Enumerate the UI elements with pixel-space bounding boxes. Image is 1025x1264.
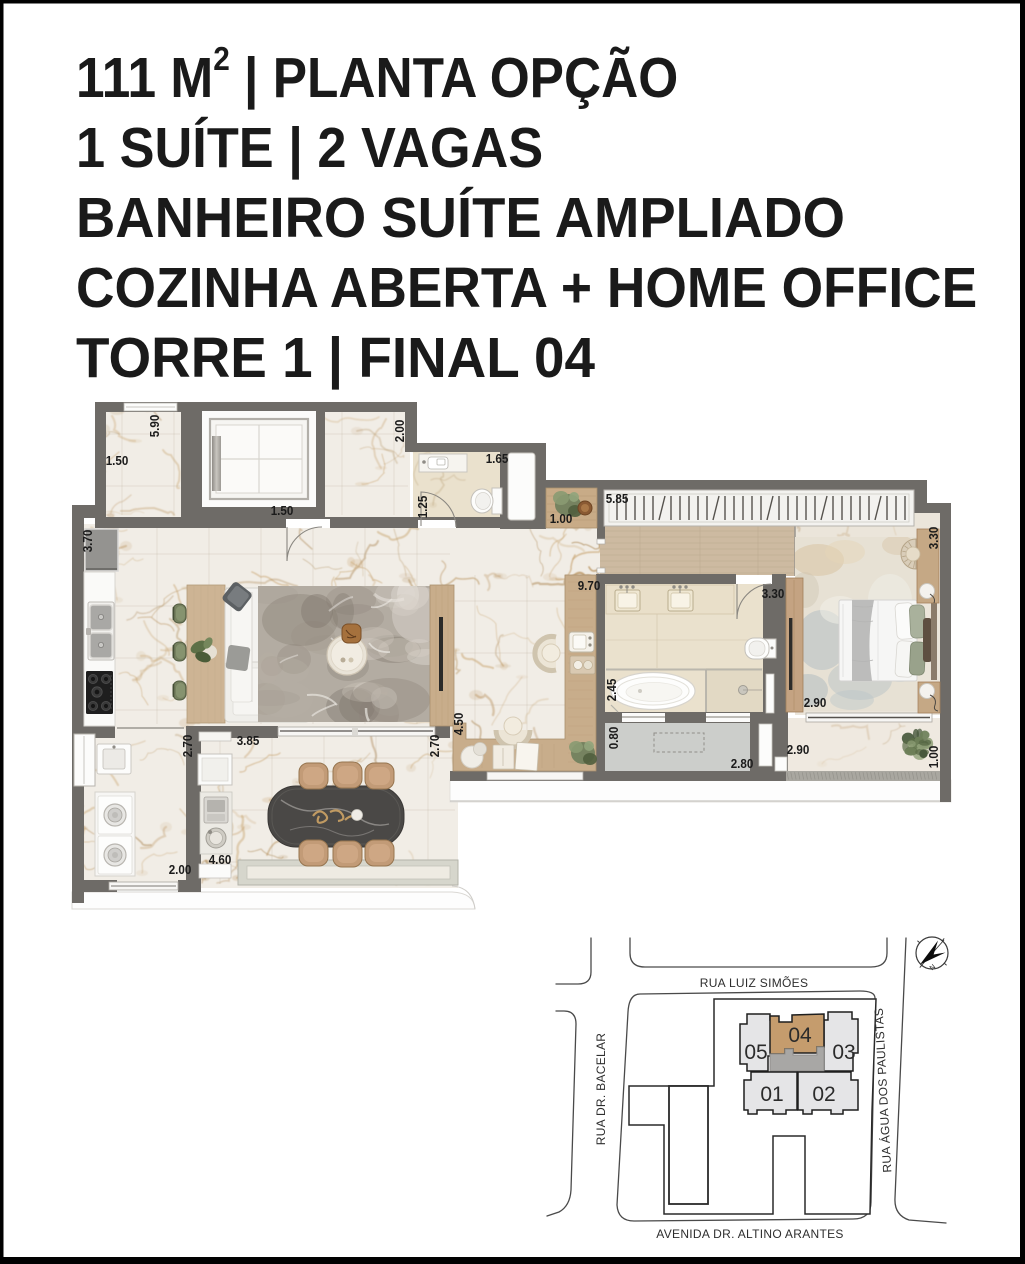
svg-text:5.90: 5.90 (147, 415, 162, 438)
svg-text:1.00: 1.00 (926, 746, 941, 769)
svg-text:1 SUÍTE | 2 VAGAS: 1 SUÍTE | 2 VAGAS (76, 115, 543, 181)
svg-text:1.50: 1.50 (106, 453, 129, 468)
svg-text:1.00: 1.00 (550, 511, 573, 526)
svg-text:2.00: 2.00 (169, 862, 192, 877)
svg-text:2.70: 2.70 (180, 735, 195, 758)
svg-text:2.90: 2.90 (804, 695, 827, 710)
svg-text:111 M2 | PLANTA OPÇÃO: 111 M2 | PLANTA OPÇÃO (76, 41, 678, 111)
svg-text:0.80: 0.80 (606, 727, 621, 750)
svg-text:RUA DR. BACELAR: RUA DR. BACELAR (594, 1033, 608, 1146)
svg-text:2.45: 2.45 (604, 679, 619, 702)
svg-text:AVENIDA DR. ALTINO ARANTES: AVENIDA DR. ALTINO ARANTES (656, 1227, 843, 1241)
svg-text:BANHEIRO SUÍTE AMPLIADO: BANHEIRO SUÍTE AMPLIADO (76, 186, 845, 249)
svg-text:2.90: 2.90 (787, 742, 810, 757)
svg-text:01: 01 (760, 1083, 783, 1106)
svg-text:9.70: 9.70 (578, 578, 601, 593)
svg-text:3.70: 3.70 (80, 530, 95, 553)
svg-text:2.70: 2.70 (427, 735, 442, 758)
svg-text:1.50: 1.50 (271, 503, 294, 518)
svg-text:1.65: 1.65 (486, 451, 509, 466)
svg-text:5.85: 5.85 (606, 491, 629, 506)
svg-text:03: 03 (832, 1041, 855, 1064)
svg-text:04: 04 (788, 1024, 812, 1047)
svg-text:3.85: 3.85 (237, 733, 260, 748)
svg-text:RUA LUIZ SIMÕES: RUA LUIZ SIMÕES (700, 975, 809, 990)
svg-text:4.50: 4.50 (451, 713, 466, 736)
svg-text:1.25: 1.25 (415, 496, 430, 519)
svg-text:02: 02 (812, 1083, 835, 1106)
svg-text:3.30: 3.30 (762, 586, 785, 601)
svg-text:COZINHA ABERTA + HOME OFFICE: COZINHA ABERTA + HOME OFFICE (76, 255, 977, 319)
svg-text:3.30: 3.30 (926, 527, 941, 550)
svg-text:2.80: 2.80 (731, 756, 754, 771)
svg-text:4.60: 4.60 (209, 852, 232, 867)
svg-text:05: 05 (744, 1041, 767, 1064)
svg-text:TORRE 1 | FINAL 04: TORRE 1 | FINAL 04 (76, 325, 595, 390)
svg-text:2.00: 2.00 (392, 420, 407, 443)
